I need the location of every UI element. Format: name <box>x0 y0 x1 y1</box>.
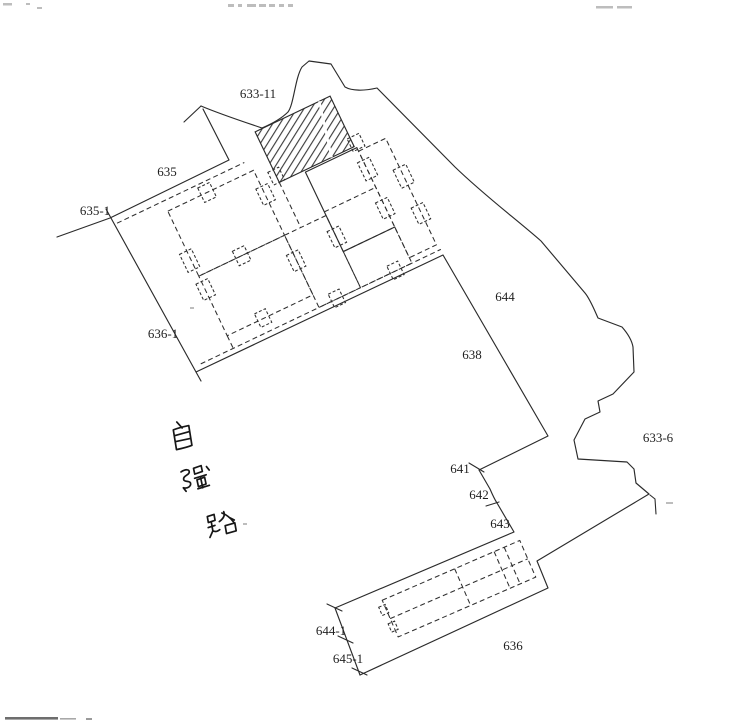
boundary-636-1-and-638 <box>106 209 548 675</box>
parcel-label-638: 638 <box>462 347 482 362</box>
boundary-peak-left-arm <box>184 106 201 122</box>
hw-char-zi <box>171 420 193 450</box>
parcel-label-642: 642 <box>469 487 489 502</box>
parcel-label-645-1: 645-1 <box>333 651 363 666</box>
hw-char-qiang <box>180 464 213 492</box>
survey-drawing: 633-11 635 635-1 636-1 644 638 633-6 641… <box>0 0 740 720</box>
building-outline <box>199 235 313 335</box>
strip-building-636 <box>377 540 536 639</box>
boundary-corner-tick <box>650 495 656 514</box>
road-name-handwritten: 自強路 <box>171 420 237 538</box>
strip-notch <box>379 604 389 615</box>
parcel-label-636: 636 <box>503 638 523 653</box>
building-outline <box>168 170 285 276</box>
parcel-label-635: 635 <box>157 164 177 179</box>
parcel-label-633-11: 633-11 <box>240 86 276 101</box>
cluster-road-edge-dashed <box>117 163 244 224</box>
hw-char-lu <box>206 510 237 537</box>
parcel-label-643: 643 <box>490 516 510 531</box>
building-outline <box>343 227 412 288</box>
parcel-label-644-1: 644-1 <box>316 623 346 638</box>
tick-644-1-top <box>327 604 342 611</box>
cluster-connectors <box>177 182 335 348</box>
parcel-label-644: 644 <box>495 289 515 304</box>
strip-notch <box>388 621 398 632</box>
parcel-label-636-1: 636-1 <box>148 326 178 341</box>
parcel-boundaries <box>57 61 656 675</box>
scan-artifacts <box>3 3 673 720</box>
hatched-parcel-633-11 <box>255 96 354 182</box>
parcel-label-635-1: 635-1 <box>80 203 110 218</box>
cluster-bottom-dashed <box>201 249 441 364</box>
tick-641 <box>469 463 484 472</box>
cadastral-map-scan: 633-11 635 635-1 636-1 644 638 633-6 641… <box>0 0 740 720</box>
scan-edge-bar <box>5 717 58 720</box>
parcel-label-633-6: 633-6 <box>643 430 674 445</box>
parcel-label-641: 641 <box>450 461 470 476</box>
building-outline <box>359 138 437 257</box>
